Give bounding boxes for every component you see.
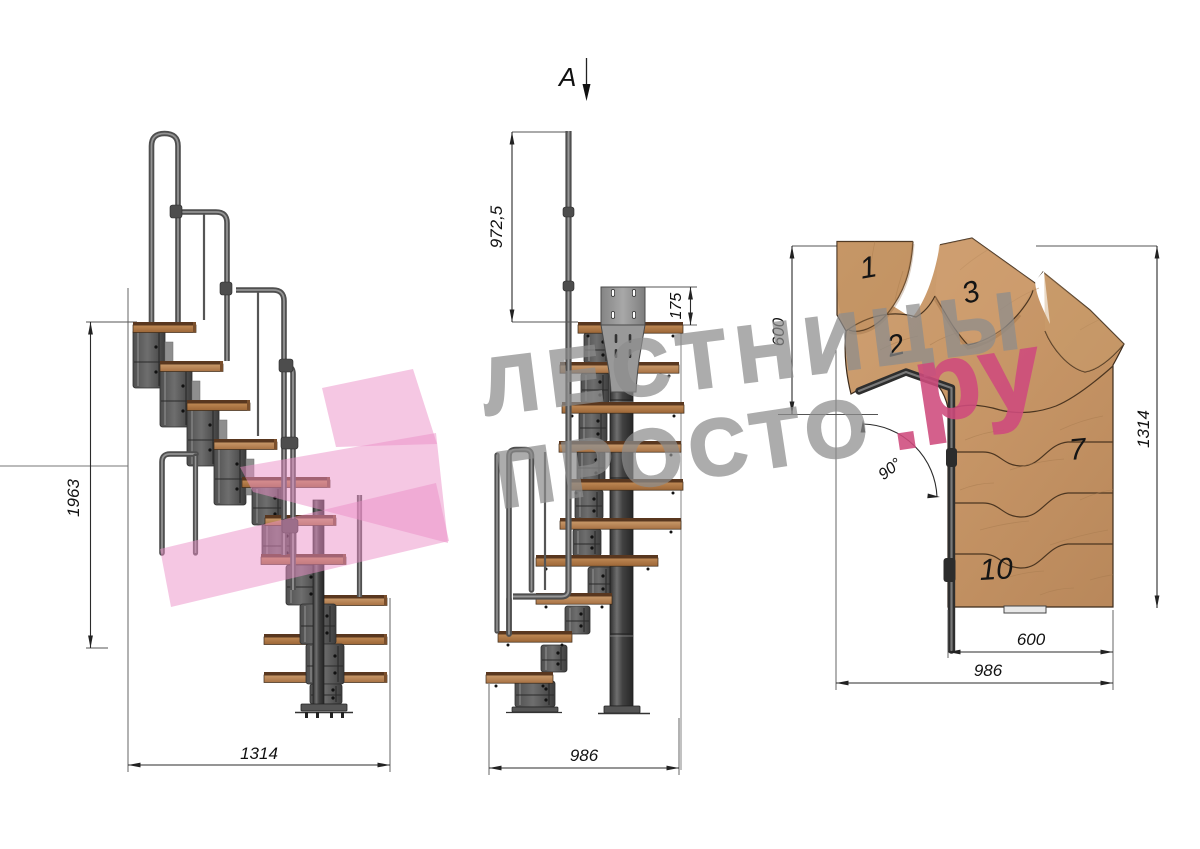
svg-text:972,5: 972,5 [487, 205, 506, 248]
svg-text:986: 986 [974, 661, 1003, 680]
svg-text:1314: 1314 [1134, 410, 1153, 448]
svg-text:10: 10 [979, 552, 1014, 587]
svg-text:600: 600 [1017, 630, 1046, 649]
svg-text:986: 986 [570, 746, 599, 765]
svg-text:A: A [557, 62, 576, 92]
svg-text:175: 175 [668, 293, 685, 320]
svg-text:ру: ру [905, 307, 1050, 446]
svg-text:1963: 1963 [64, 479, 83, 517]
svg-text:1314: 1314 [240, 744, 278, 763]
